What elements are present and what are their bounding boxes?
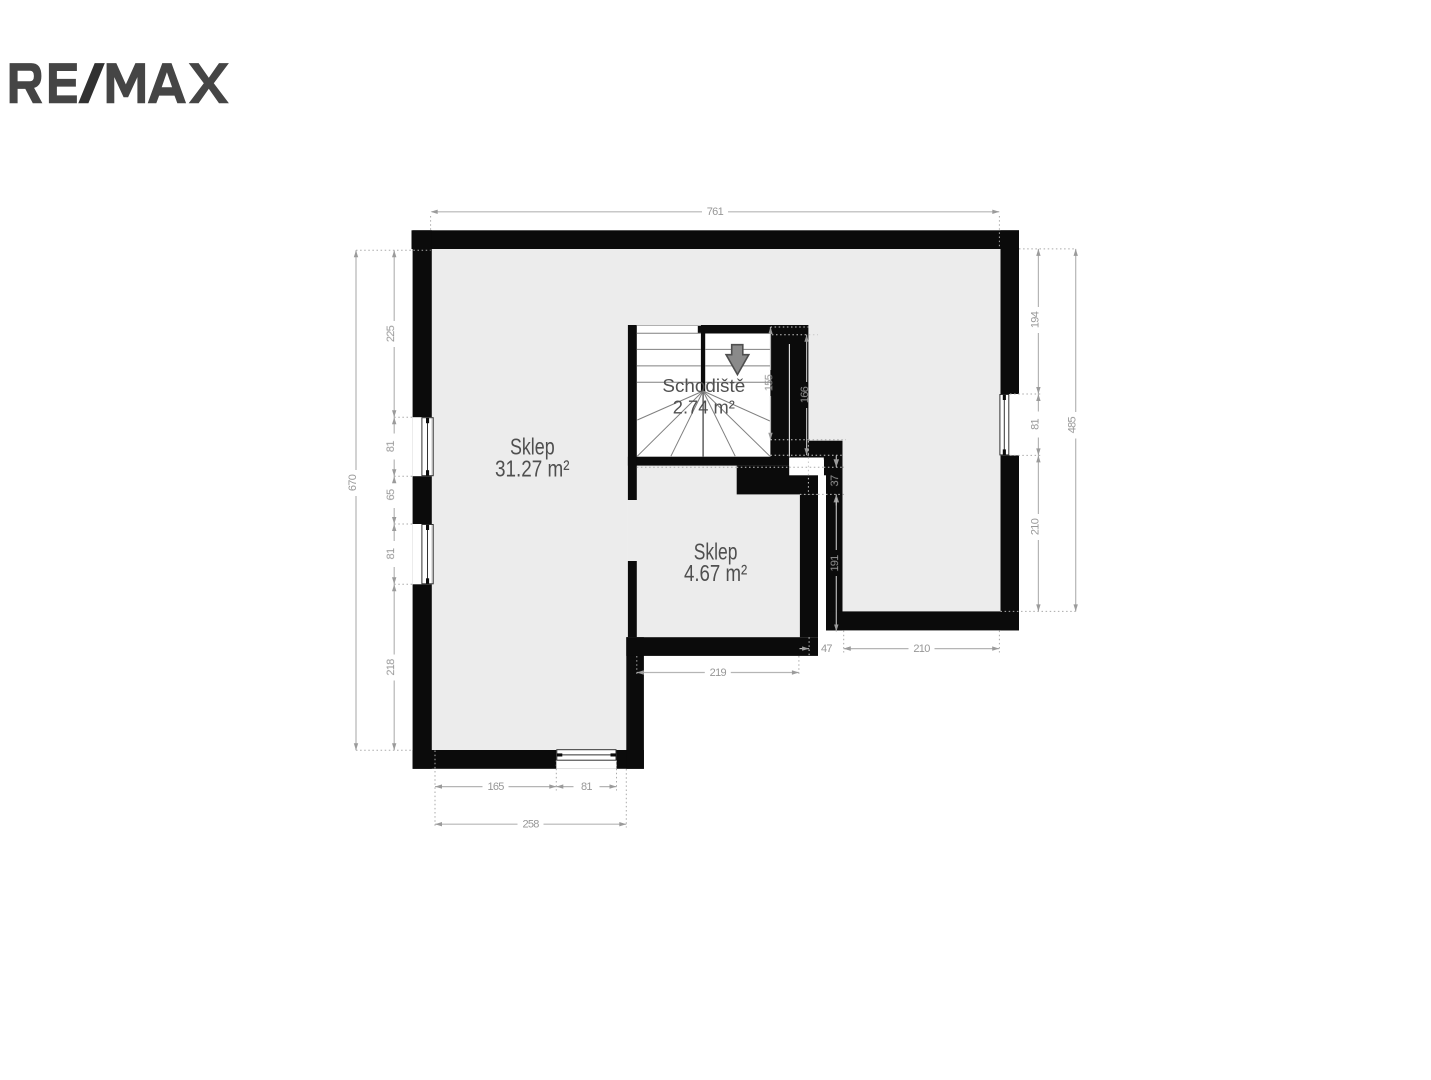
svg-text:194: 194: [1030, 311, 1042, 328]
svg-text:81: 81: [385, 441, 397, 452]
svg-text:191: 191: [829, 555, 841, 572]
svg-text:65: 65: [385, 489, 397, 500]
svg-text:155: 155: [763, 374, 775, 391]
svg-text:81: 81: [385, 548, 397, 559]
svg-text:225: 225: [385, 325, 397, 342]
svg-text:4.67 m²: 4.67 m²: [684, 560, 748, 586]
svg-text:210: 210: [1030, 518, 1042, 535]
svg-text:761: 761: [707, 206, 724, 218]
svg-text:37: 37: [829, 475, 841, 486]
svg-text:210: 210: [913, 643, 930, 655]
svg-text:31.27 m²: 31.27 m²: [495, 456, 570, 482]
svg-text:485: 485: [1067, 416, 1079, 433]
svg-text:81: 81: [1030, 419, 1042, 430]
svg-text:670: 670: [347, 474, 359, 491]
svg-text:47: 47: [821, 643, 832, 655]
svg-text:165: 165: [487, 781, 504, 793]
svg-text:81: 81: [581, 781, 592, 793]
svg-text:218: 218: [385, 659, 397, 676]
svg-text:219: 219: [710, 667, 727, 679]
svg-text:258: 258: [522, 819, 539, 831]
svg-text:Schodiště: Schodiště: [662, 375, 745, 396]
svg-text:2.74 m²: 2.74 m²: [673, 397, 735, 418]
svg-text:166: 166: [799, 386, 811, 403]
